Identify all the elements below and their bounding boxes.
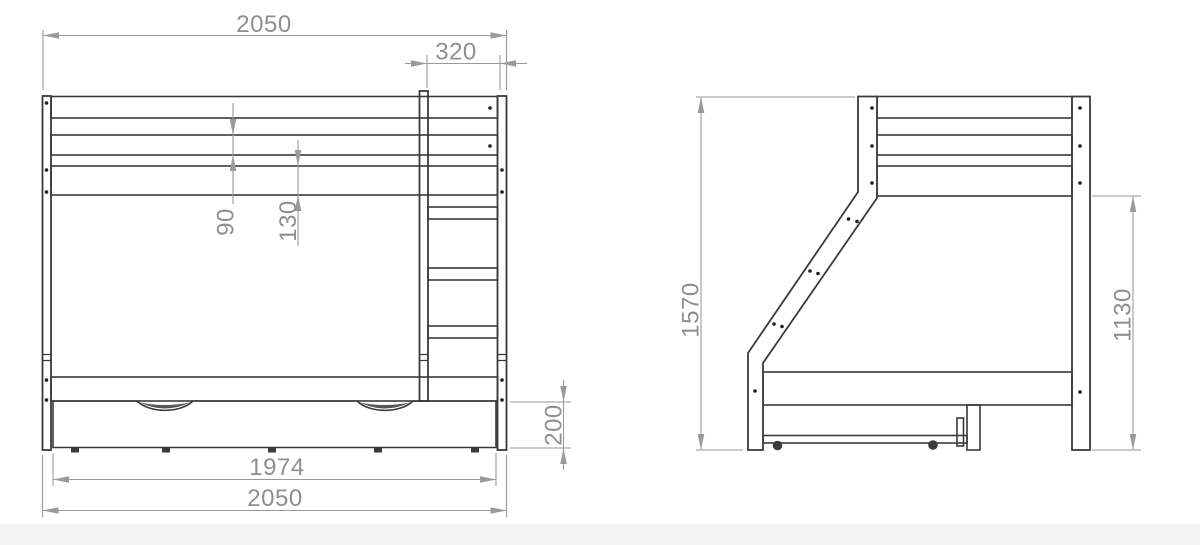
arrowhead bbox=[560, 448, 567, 464]
drawer-side-panel bbox=[967, 405, 980, 450]
arrowhead bbox=[560, 386, 567, 402]
side-guard-board-middle bbox=[877, 135, 1072, 155]
dim-label-frame-board: 130 bbox=[275, 200, 302, 242]
joint-mark bbox=[420, 355, 429, 361]
drawer-front-panel bbox=[53, 401, 496, 448]
front-drawer bbox=[53, 401, 496, 453]
dim-label-side-post-height: 1130 bbox=[1110, 288, 1137, 342]
side-rail bbox=[763, 372, 1072, 405]
side-rear-post bbox=[1072, 97, 1090, 451]
arrowhead bbox=[53, 476, 69, 483]
front-guard-board-top bbox=[51, 97, 498, 119]
arrowhead bbox=[411, 60, 427, 67]
arrowhead bbox=[230, 119, 237, 135]
dim-ladder-width: 320 bbox=[405, 39, 527, 91]
front-view: 2050 320 90 130 bbox=[43, 11, 572, 517]
side-drawer bbox=[763, 405, 980, 450]
arrowhead bbox=[500, 60, 516, 67]
arrowhead bbox=[491, 32, 507, 39]
arrowhead bbox=[1130, 196, 1137, 212]
dim-label-front-width-top: 2050 bbox=[236, 11, 291, 38]
extension-line bbox=[696, 97, 855, 450]
dim-label-side-total-height: 1570 bbox=[678, 282, 705, 337]
caster-wheel bbox=[773, 441, 783, 451]
ladder bbox=[420, 91, 498, 401]
joint-mark bbox=[498, 355, 507, 361]
front-guard-board-middle bbox=[51, 135, 498, 155]
dim-label-front-width-bottom: 2050 bbox=[247, 485, 302, 512]
side-guard-board-top bbox=[877, 97, 1072, 119]
front-frame-board bbox=[51, 166, 498, 195]
dim-drawer-width: 1974 bbox=[53, 453, 496, 486]
arrowhead bbox=[295, 150, 302, 166]
drawer-pull-tab bbox=[957, 418, 964, 446]
post-joint-marks bbox=[43, 355, 507, 361]
arrowhead bbox=[491, 507, 507, 514]
ladder-rung bbox=[428, 207, 498, 219]
front-lower-rail bbox=[51, 377, 498, 401]
arrowhead bbox=[1130, 434, 1137, 450]
drawer-foot bbox=[268, 448, 276, 453]
front-screw-dots bbox=[45, 101, 504, 402]
drawer-foot bbox=[374, 448, 382, 453]
side-view: 1570 1130 bbox=[678, 97, 1142, 451]
drawing-canvas: 2050 320 90 130 bbox=[0, 0, 1200, 545]
caster-wheel bbox=[928, 440, 938, 450]
arrowhead bbox=[698, 434, 705, 450]
dim-label-drawer-width: 1974 bbox=[249, 454, 304, 481]
front-left-post bbox=[43, 96, 52, 450]
dim-side-post-height: 1130 bbox=[1092, 196, 1141, 450]
side-screw-dots bbox=[753, 106, 1082, 394]
arrowhead bbox=[43, 507, 59, 514]
dim-label-drawer-height: 200 bbox=[541, 404, 568, 446]
arrowhead bbox=[230, 155, 237, 171]
joint-mark bbox=[43, 355, 52, 361]
side-frame-board bbox=[877, 166, 1072, 196]
ladder-rung bbox=[428, 326, 498, 338]
dim-drawer-height: 200 bbox=[510, 380, 571, 470]
drawer-foot bbox=[162, 448, 170, 453]
ladder-rung bbox=[428, 268, 498, 280]
dim-frame-board: 130 bbox=[275, 140, 302, 246]
dim-guard-board: 90 bbox=[213, 103, 240, 236]
dim-side-total-height: 1570 bbox=[678, 97, 856, 450]
arrowhead bbox=[480, 476, 496, 483]
front-right-post bbox=[498, 96, 507, 450]
drawer-foot bbox=[71, 448, 79, 453]
arrowhead bbox=[43, 32, 59, 39]
dim-label-ladder-width: 320 bbox=[435, 39, 477, 66]
drawer-foot bbox=[471, 448, 479, 453]
arrowhead bbox=[698, 97, 705, 113]
dim-label-guard-board: 90 bbox=[213, 208, 240, 236]
side-angled-post bbox=[748, 97, 877, 451]
technical-drawing: 2050 320 90 130 bbox=[0, 0, 1200, 545]
scan-artifact-band bbox=[0, 524, 1200, 545]
